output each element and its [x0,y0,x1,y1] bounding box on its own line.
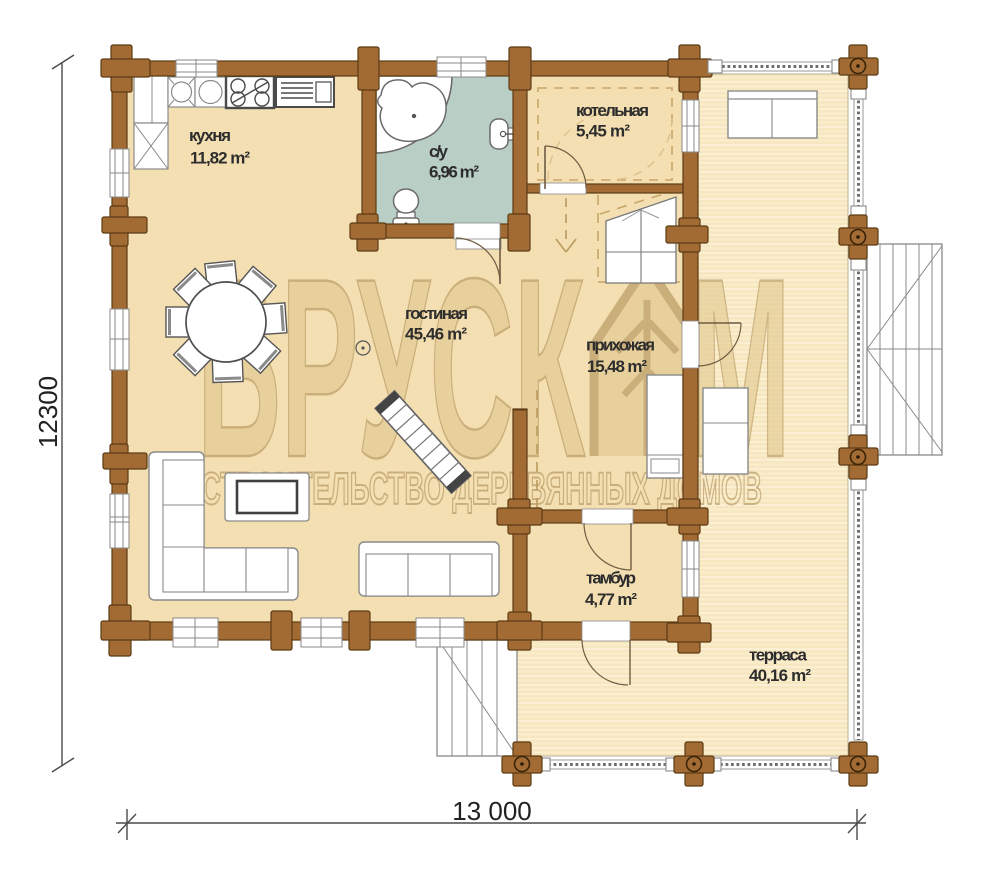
svg-text:тамбур: тамбур [586,569,636,588]
svg-text:с/у: с/у [429,142,449,161]
svg-text:15,48 m²: 15,48 m² [587,357,647,376]
svg-text:кухня: кухня [189,126,231,145]
svg-text:прихожая: прихожая [586,336,655,355]
svg-text:12300: 12300 [33,376,63,448]
svg-text:45,46 m²: 45,46 m² [405,325,467,344]
svg-text:40,16 m²: 40,16 m² [749,666,811,685]
svg-text:котельная: котельная [576,101,649,120]
svg-text:гостиная: гостиная [405,304,468,323]
svg-text:4,77 m²: 4,77 m² [585,590,637,609]
svg-text:5,45 m²: 5,45 m² [576,122,630,141]
svg-text:11,82 m²: 11,82 m² [190,149,250,168]
svg-text:13 000: 13 000 [452,796,532,826]
svg-text:6,96 m²: 6,96 m² [429,163,479,182]
svg-text:терраса: терраса [749,646,808,665]
